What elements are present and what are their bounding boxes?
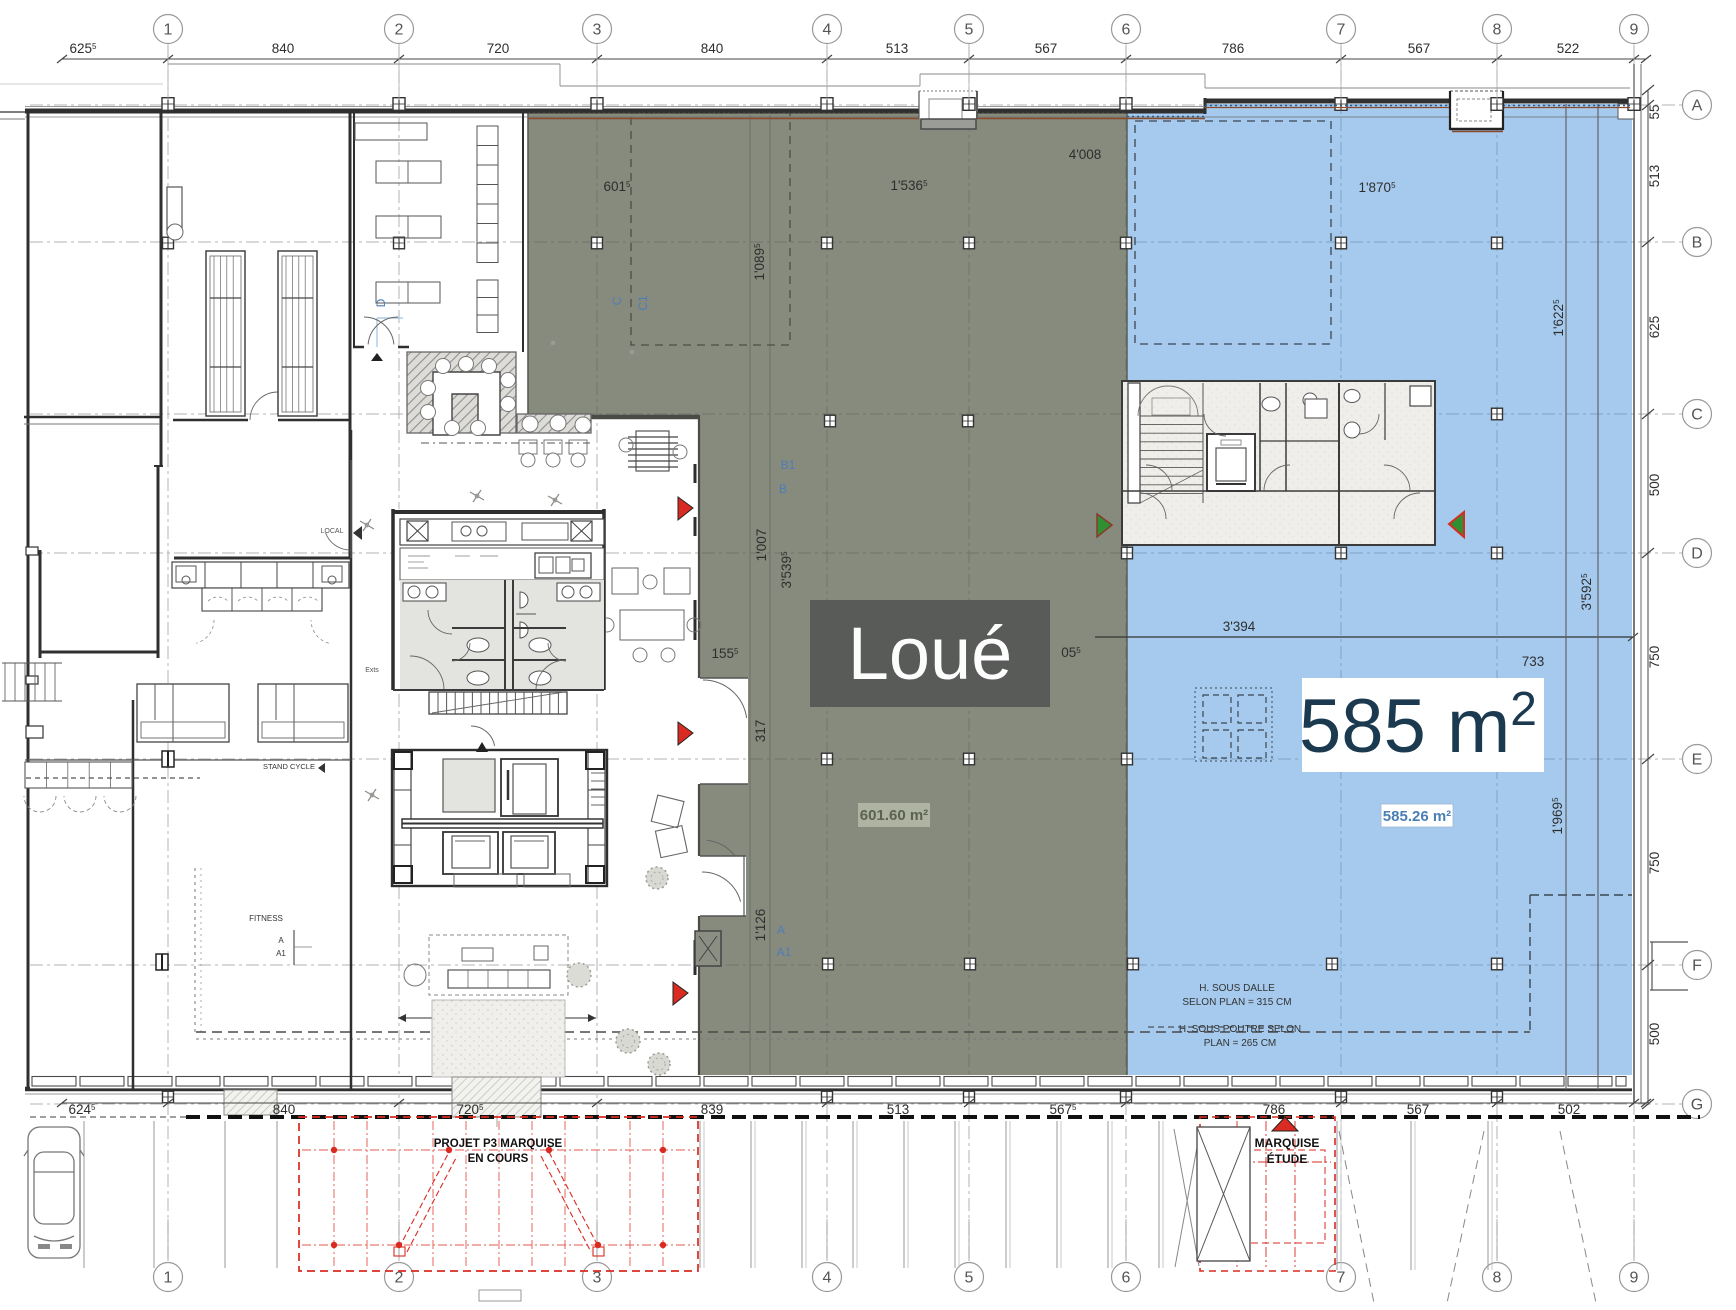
svg-text:1'9695: 1'9695 bbox=[1550, 797, 1565, 835]
svg-text:4: 4 bbox=[823, 22, 832, 39]
svg-text:567: 567 bbox=[1408, 41, 1431, 56]
svg-text:513: 513 bbox=[1647, 165, 1662, 188]
svg-text:601.60 m²: 601.60 m² bbox=[860, 807, 928, 824]
svg-text:1'0895: 1'0895 bbox=[752, 243, 767, 281]
svg-text:839: 839 bbox=[701, 1102, 724, 1117]
svg-text:1'6225: 1'6225 bbox=[1551, 299, 1566, 337]
svg-text:3'5395: 3'5395 bbox=[779, 551, 794, 589]
svg-text:MARQUISE: MARQUISE bbox=[1255, 1136, 1320, 1150]
svg-text:2: 2 bbox=[395, 1270, 404, 1287]
svg-text:840: 840 bbox=[272, 41, 295, 56]
svg-text:567: 567 bbox=[1035, 41, 1058, 56]
svg-text:STAND CYCLE: STAND CYCLE bbox=[263, 762, 315, 771]
svg-text:522: 522 bbox=[1557, 41, 1580, 56]
svg-text:A1: A1 bbox=[276, 949, 286, 958]
svg-text:6: 6 bbox=[1122, 1270, 1131, 1287]
svg-text:8: 8 bbox=[1493, 22, 1502, 39]
svg-text:B: B bbox=[779, 482, 787, 496]
svg-text:C1: C1 bbox=[636, 295, 650, 311]
svg-text:750: 750 bbox=[1647, 646, 1662, 669]
svg-text:PLAN = 265 CM: PLAN = 265 CM bbox=[1204, 1038, 1277, 1049]
svg-text:4: 4 bbox=[823, 1270, 832, 1287]
svg-text:720: 720 bbox=[487, 41, 510, 56]
svg-text:1: 1 bbox=[164, 1270, 173, 1287]
svg-text:1'007: 1'007 bbox=[754, 529, 769, 562]
svg-text:D: D bbox=[1691, 546, 1703, 563]
svg-text:G: G bbox=[1691, 1097, 1703, 1114]
svg-text:840: 840 bbox=[273, 1102, 296, 1117]
svg-text:1'126: 1'126 bbox=[753, 909, 768, 942]
svg-text:5: 5 bbox=[965, 22, 974, 39]
svg-text:A: A bbox=[1692, 98, 1703, 115]
svg-text:H. SOUS DALLE: H. SOUS DALLE bbox=[1199, 983, 1275, 994]
svg-text:D: D bbox=[374, 298, 388, 307]
svg-text:FITNESS: FITNESS bbox=[249, 914, 283, 923]
svg-text:ÉTUDE: ÉTUDE bbox=[1267, 1151, 1308, 1166]
svg-text:625: 625 bbox=[1647, 316, 1662, 339]
svg-text:3: 3 bbox=[593, 22, 602, 39]
svg-text:H. SOUS POUTRE SELON: H. SOUS POUTRE SELON bbox=[1179, 1024, 1301, 1035]
svg-text:55: 55 bbox=[1647, 104, 1662, 119]
svg-text:F: F bbox=[1692, 958, 1702, 975]
svg-text:317: 317 bbox=[753, 720, 768, 743]
svg-text:1'5365: 1'5365 bbox=[890, 178, 928, 193]
svg-text:Exts: Exts bbox=[365, 667, 379, 674]
svg-text:567: 567 bbox=[1407, 1102, 1430, 1117]
svg-text:500: 500 bbox=[1647, 474, 1662, 497]
svg-text:7: 7 bbox=[1337, 1270, 1346, 1287]
svg-text:786: 786 bbox=[1263, 1102, 1286, 1117]
svg-text:E: E bbox=[1692, 752, 1703, 769]
svg-text:8: 8 bbox=[1493, 1270, 1502, 1287]
svg-text:502: 502 bbox=[1558, 1102, 1581, 1117]
svg-text:3'394: 3'394 bbox=[1223, 619, 1256, 634]
svg-text:2: 2 bbox=[395, 22, 404, 39]
svg-text:C: C bbox=[1691, 407, 1703, 424]
svg-text:5: 5 bbox=[965, 1270, 974, 1287]
svg-text:1: 1 bbox=[164, 22, 173, 39]
svg-text:B1: B1 bbox=[781, 458, 796, 472]
svg-text:EN COURS: EN COURS bbox=[468, 1153, 529, 1165]
svg-text:840: 840 bbox=[701, 41, 724, 56]
svg-text:786: 786 bbox=[1222, 41, 1245, 56]
svg-text:585 m2: 585 m2 bbox=[1299, 683, 1537, 769]
svg-text:PROJET P3 MARQUISE: PROJET P3 MARQUISE bbox=[434, 1138, 563, 1150]
svg-text:A: A bbox=[777, 923, 785, 937]
svg-text:A1: A1 bbox=[777, 945, 792, 959]
svg-text:3'5925: 3'5925 bbox=[1579, 573, 1594, 611]
svg-text:750: 750 bbox=[1647, 852, 1662, 875]
svg-text:1'8705: 1'8705 bbox=[1358, 180, 1396, 195]
svg-text:4'008: 4'008 bbox=[1069, 147, 1102, 162]
svg-text:LOCAL: LOCAL bbox=[321, 528, 344, 535]
svg-text:Loué: Loué bbox=[848, 612, 1013, 695]
svg-text:A: A bbox=[278, 936, 284, 945]
svg-text:6: 6 bbox=[1122, 22, 1131, 39]
svg-text:9: 9 bbox=[1630, 22, 1639, 39]
svg-text:585.26 m²: 585.26 m² bbox=[1383, 808, 1451, 825]
svg-text:C: C bbox=[610, 296, 624, 305]
svg-text:SELON PLAN = 315 CM: SELON PLAN = 315 CM bbox=[1182, 997, 1291, 1008]
svg-text:733: 733 bbox=[1522, 654, 1545, 669]
svg-text:513: 513 bbox=[886, 41, 909, 56]
svg-text:B: B bbox=[1692, 235, 1703, 252]
svg-text:513: 513 bbox=[887, 1102, 910, 1117]
svg-text:7: 7 bbox=[1337, 22, 1346, 39]
svg-text:500: 500 bbox=[1647, 1023, 1662, 1046]
svg-text:3: 3 bbox=[593, 1270, 602, 1287]
svg-text:9: 9 bbox=[1630, 1270, 1639, 1287]
